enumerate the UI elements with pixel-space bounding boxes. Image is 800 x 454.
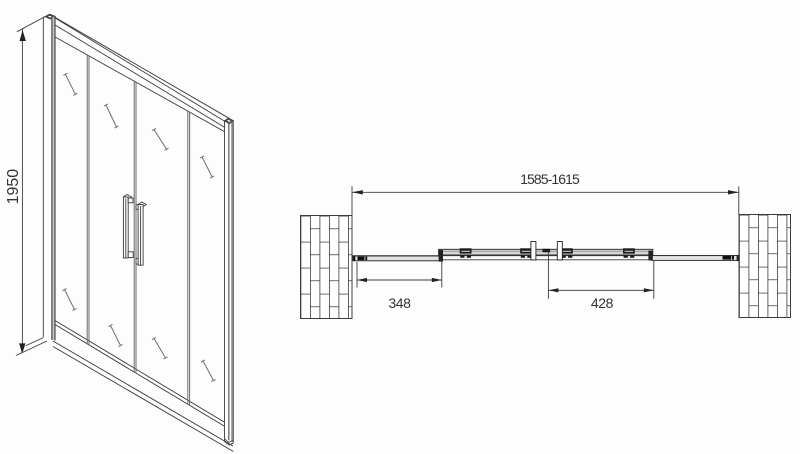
svg-text:1585-1615: 1585-1615 — [520, 171, 580, 187]
svg-text:348: 348 — [388, 295, 411, 311]
svg-text:428: 428 — [591, 295, 614, 311]
svg-text:1950: 1950 — [5, 169, 22, 205]
